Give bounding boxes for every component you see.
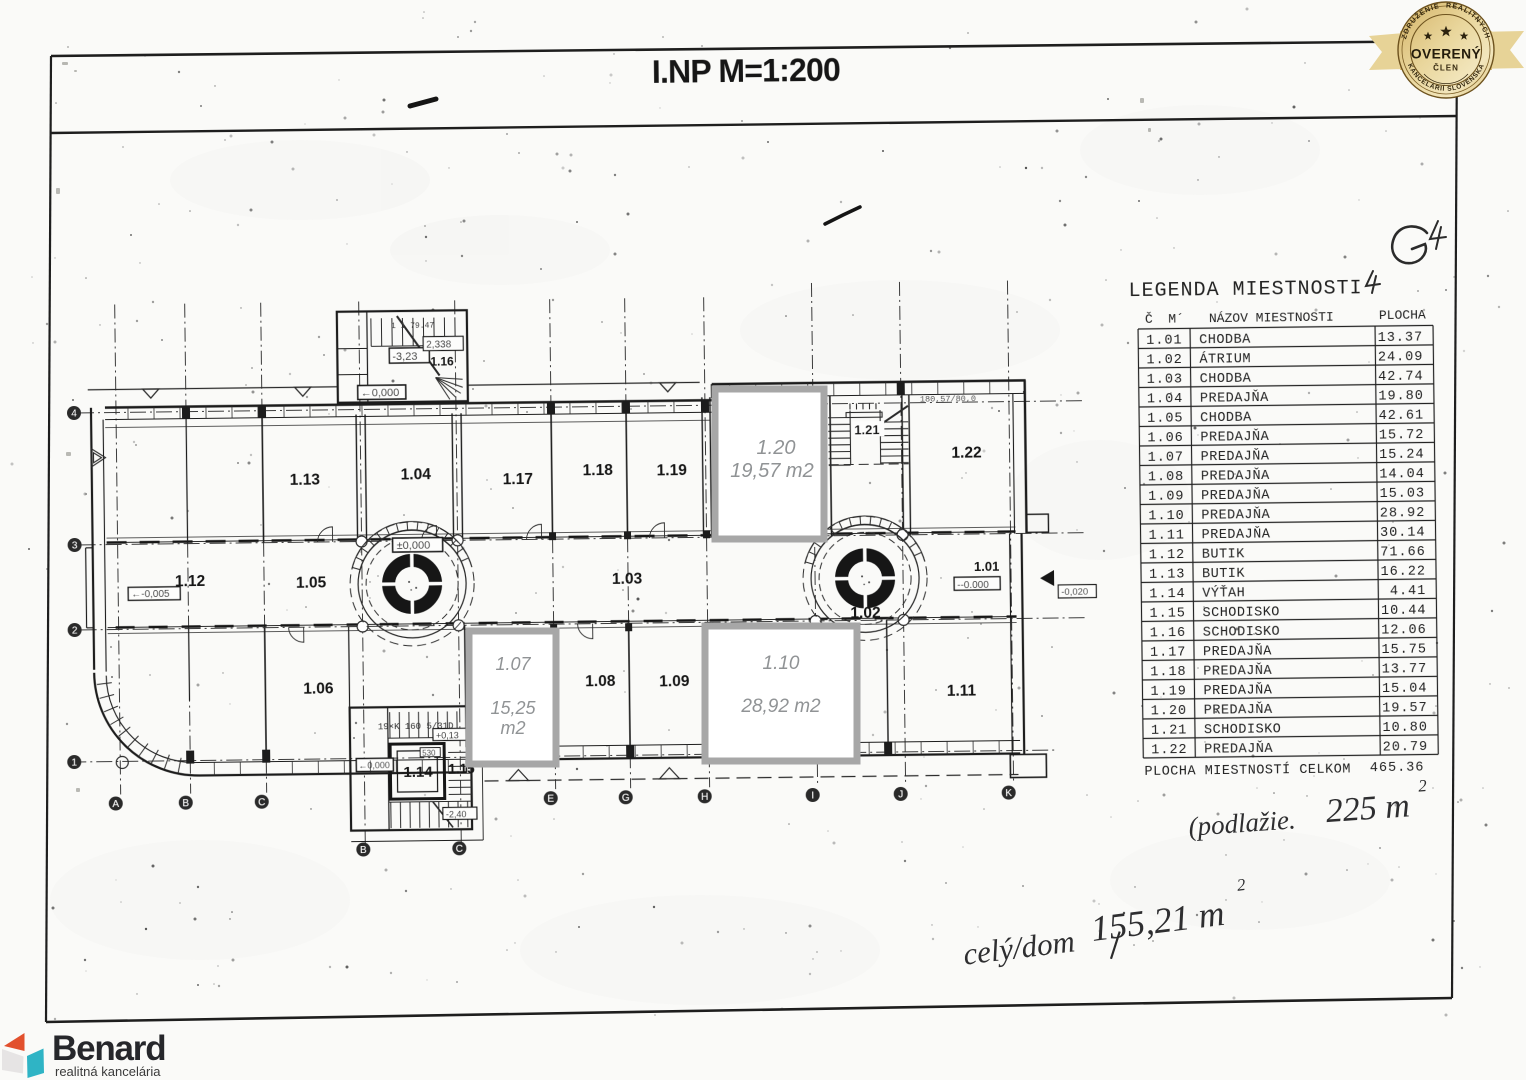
svg-text:E: E: [547, 794, 554, 805]
svg-text:SCHODISKO: SCHODISKO: [1204, 722, 1282, 738]
svg-text:13.77: 13.77: [1382, 662, 1428, 678]
svg-text:19.57: 19.57: [1382, 701, 1428, 717]
svg-text:PREDAJŇA: PREDAJŇA: [1201, 468, 1270, 485]
svg-text:H: H: [701, 792, 708, 803]
svg-text:ČLEN: ČLEN: [1433, 64, 1459, 73]
svg-text:1.18: 1.18: [1150, 665, 1187, 680]
svg-text:1.03: 1.03: [1147, 372, 1184, 387]
svg-text:1.04: 1.04: [401, 466, 432, 483]
svg-text:1.14: 1.14: [1149, 587, 1186, 602]
svg-text:1.11: 1.11: [947, 682, 977, 699]
svg-text:180,57/80,0: 180,57/80,0: [920, 394, 976, 405]
svg-text:1.21: 1.21: [1151, 723, 1188, 738]
svg-text:4.41: 4.41: [1390, 584, 1427, 599]
svg-text:I.NP M=1:200: I.NP M=1:200: [652, 52, 841, 90]
svg-text:PREDAJŇA: PREDAJŇA: [1201, 448, 1270, 465]
svg-text:1.01: 1.01: [974, 559, 999, 574]
svg-text:C: C: [258, 797, 265, 808]
svg-text:PREDAJŇA: PREDAJŇA: [1203, 643, 1272, 660]
svg-text:1.07: 1.07: [1148, 450, 1185, 465]
svg-text:I: I: [811, 790, 814, 801]
svg-text:28,92 m2: 28,92 m2: [740, 696, 821, 717]
svg-text:19,57 m2: 19,57 m2: [730, 460, 813, 482]
svg-text:1.11: 1.11: [1148, 528, 1185, 543]
svg-text:G: G: [622, 793, 630, 804]
svg-text:PLOCHA: PLOCHA: [1379, 307, 1426, 323]
svg-text:CHODBA: CHODBA: [1199, 333, 1251, 349]
svg-text:4: 4: [71, 408, 77, 419]
svg-text:2,338: 2,338: [426, 339, 452, 350]
svg-text:1.02: 1.02: [1146, 353, 1183, 368]
svg-text:1.08: 1.08: [585, 673, 616, 690]
svg-text:1.05: 1.05: [296, 574, 327, 591]
svg-text:1.18: 1.18: [583, 462, 614, 479]
svg-text:PREDAJŇA: PREDAJŇA: [1201, 487, 1270, 504]
svg-text:-3,23: -3,23: [392, 351, 417, 363]
svg-text:13.37: 13.37: [1378, 331, 1424, 347]
svg-text:1.19: 1.19: [657, 462, 688, 479]
svg-text:16.22: 16.22: [1380, 564, 1426, 580]
svg-text:PREDAJŇA: PREDAJŇA: [1204, 741, 1273, 758]
svg-text:30.14: 30.14: [1380, 525, 1426, 541]
svg-text:PREDAJŇA: PREDAJŇA: [1201, 526, 1270, 543]
svg-text:VÝŤAH: VÝŤAH: [1202, 585, 1245, 602]
svg-text:15,25: 15,25: [490, 698, 536, 718]
svg-text:PREDAJŇA: PREDAJŇA: [1203, 663, 1272, 680]
svg-text:B: B: [360, 845, 367, 856]
svg-text:1.12: 1.12: [1149, 548, 1186, 563]
svg-text:K: K: [1005, 788, 1012, 799]
svg-text:1.02: 1.02: [850, 605, 880, 622]
svg-text:71.66: 71.66: [1380, 545, 1426, 561]
svg-text:1 1 79.47: 1 1 79.47: [391, 322, 435, 332]
svg-text:-2,40: -2,40: [446, 809, 467, 819]
svg-text:1.13: 1.13: [1149, 567, 1186, 582]
svg-text:1.16: 1.16: [1150, 626, 1187, 641]
svg-text:1.06: 1.06: [303, 680, 334, 697]
svg-text:1.20: 1.20: [1151, 704, 1188, 719]
svg-text:2: 2: [72, 625, 78, 636]
svg-text:20.79: 20.79: [1383, 740, 1429, 756]
svg-text:1.15: 1.15: [1149, 606, 1186, 621]
svg-text:BUTIK: BUTIK: [1202, 547, 1246, 563]
svg-text:SCHODISKO: SCHODISKO: [1202, 605, 1280, 621]
svg-text:1.21: 1.21: [854, 422, 879, 437]
svg-text:24.09: 24.09: [1378, 350, 1424, 366]
svg-text:A: A: [112, 799, 119, 810]
svg-text:1.17: 1.17: [503, 471, 533, 488]
svg-text:1.05: 1.05: [1147, 411, 1184, 426]
svg-text:1.14: 1.14: [403, 764, 433, 781]
svg-text:10.44: 10.44: [1381, 603, 1427, 619]
svg-text:PREDAJŇA: PREDAJŇA: [1201, 507, 1270, 524]
svg-text:42.61: 42.61: [1379, 409, 1425, 425]
svg-text:LEGENDA MIESTNOSTI: LEGENDA MIESTNOSTI: [1128, 277, 1362, 303]
svg-text:225 m: 225 m: [1325, 787, 1411, 830]
svg-text:NÁZOV MIESTNOSTI: NÁZOV MIESTNOSTI: [1209, 310, 1334, 327]
svg-text:--0.000: --0.000: [957, 580, 989, 591]
svg-text:←0,000: ←0,000: [361, 387, 400, 399]
svg-text:1.22: 1.22: [1151, 743, 1188, 758]
svg-text:J: J: [898, 789, 903, 800]
svg-text:ÁTRIUM: ÁTRIUM: [1199, 351, 1251, 368]
svg-text:B: B: [182, 798, 189, 809]
svg-text:28.92: 28.92: [1380, 506, 1426, 522]
svg-text:-0,020: -0,020: [1061, 587, 1088, 598]
svg-text:CHODBA: CHODBA: [1200, 372, 1252, 388]
svg-text:m2: m2: [500, 718, 525, 738]
svg-text:1.19: 1.19: [1150, 684, 1187, 699]
svg-text:15.24: 15.24: [1379, 448, 1425, 464]
svg-text:19.80: 19.80: [1378, 389, 1424, 405]
svg-text:530: 530: [422, 749, 436, 758]
svg-text:1.16: 1.16: [430, 354, 454, 368]
svg-text:42.74: 42.74: [1378, 370, 1424, 386]
svg-text:Č M´: Č M´: [1145, 311, 1184, 326]
svg-text:15.04: 15.04: [1382, 681, 1428, 697]
svg-text:1.08: 1.08: [1148, 470, 1185, 485]
svg-text:1: 1: [71, 757, 77, 768]
svg-text:12.06: 12.06: [1381, 623, 1427, 639]
svg-text:PREDAJŇA: PREDAJŇA: [1200, 390, 1269, 407]
svg-text:1.04: 1.04: [1147, 392, 1184, 407]
svg-text:C: C: [456, 844, 463, 855]
svg-text:←-0,005: ←-0,005: [131, 589, 170, 600]
svg-text:1.09: 1.09: [659, 673, 690, 690]
svg-text:CHODBA: CHODBA: [1200, 411, 1252, 427]
svg-text:1.03: 1.03: [612, 571, 643, 588]
svg-text:PREDAJŇA: PREDAJŇA: [1200, 429, 1269, 446]
svg-text:PREDAJŇA: PREDAJŇA: [1203, 682, 1272, 699]
svg-text:10.80: 10.80: [1382, 720, 1428, 736]
svg-text:1.17: 1.17: [1150, 645, 1187, 660]
svg-text:realitná kancelária: realitná kancelária: [55, 1064, 161, 1079]
svg-text:+0,13: +0,13: [436, 730, 459, 740]
svg-text:1.10: 1.10: [763, 653, 800, 674]
svg-text:1.01: 1.01: [1146, 333, 1183, 348]
svg-text:15.75: 15.75: [1381, 642, 1427, 658]
svg-text:3: 3: [72, 540, 78, 551]
svg-text:1.12: 1.12: [175, 573, 205, 590]
svg-text:15.72: 15.72: [1379, 428, 1425, 444]
svg-text:PLOCHA MIESTNOSTÍ CELKOM: PLOCHA MIESTNOSTÍ CELKOM: [1144, 761, 1351, 780]
svg-text:15.03: 15.03: [1379, 487, 1425, 503]
svg-text:PREDAJŇA: PREDAJŇA: [1204, 702, 1273, 719]
svg-text:SCHODISKO: SCHODISKO: [1203, 625, 1281, 641]
svg-text:465.36: 465.36: [1370, 761, 1425, 777]
svg-text:BUTIK: BUTIK: [1202, 567, 1246, 583]
svg-text:Benard: Benard: [52, 1029, 165, 1068]
svg-text:OVERENÝ: OVERENÝ: [1411, 45, 1481, 62]
svg-text:←0,000: ←0,000: [358, 760, 390, 770]
svg-text:1.07: 1.07: [495, 654, 531, 674]
svg-text:14.04: 14.04: [1379, 467, 1425, 483]
svg-text:1.22: 1.22: [951, 444, 981, 461]
svg-text:1.13: 1.13: [290, 471, 321, 488]
svg-text:1.06: 1.06: [1147, 431, 1184, 446]
svg-text:±0,000: ±0,000: [397, 540, 431, 552]
svg-text:1.09: 1.09: [1148, 489, 1185, 504]
svg-text:1.10: 1.10: [1148, 509, 1185, 524]
svg-text:1.20: 1.20: [757, 437, 796, 459]
